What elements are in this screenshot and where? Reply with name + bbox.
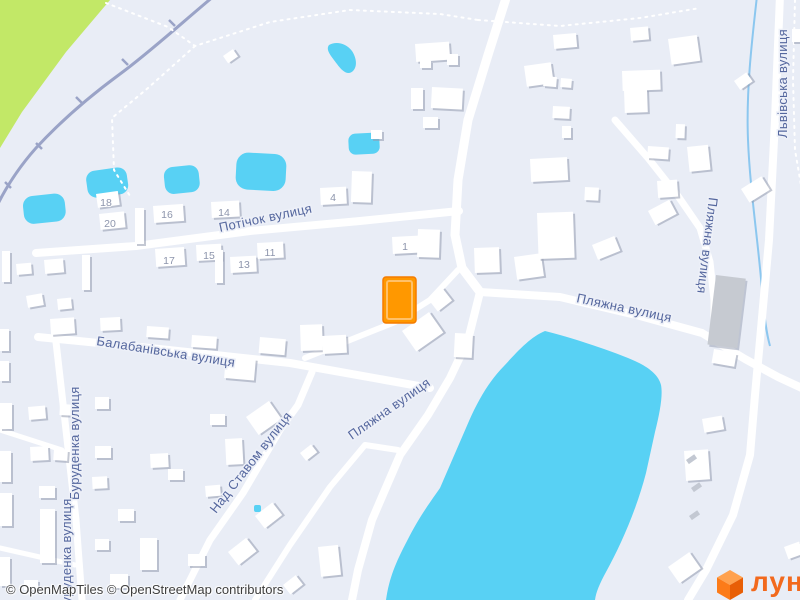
map-attribution: © OpenMapTiles © OpenStreetMap contribut…	[6, 582, 283, 597]
highlighted-building[interactable]	[383, 277, 416, 323]
map-canvas[interactable]: Потічок вулиця Балабанівська вулиця Буру…	[0, 0, 800, 600]
map-tiles: Потічок вулиця Балабанівська вулиця Буру…	[0, 0, 800, 600]
house-number: 18	[100, 197, 112, 209]
house-number: 17	[163, 255, 175, 267]
house-number: 4	[330, 192, 336, 204]
street-label-lvivska: Львівська вулиця	[775, 29, 790, 138]
house-number: 11	[265, 247, 276, 259]
house-number: 15	[203, 250, 215, 262]
house-number: 1	[402, 241, 408, 253]
lun-logo-text: лун	[751, 568, 800, 600]
house-number: 20	[104, 218, 116, 230]
house-number: 13	[238, 259, 250, 271]
house-number: 14	[218, 207, 230, 219]
lun-cube-icon	[716, 570, 744, 600]
lun-logo[interactable]: лун	[716, 568, 800, 600]
house-number: 16	[161, 209, 173, 221]
street-label-burudenka: Буруденка вулиця	[67, 386, 82, 500]
